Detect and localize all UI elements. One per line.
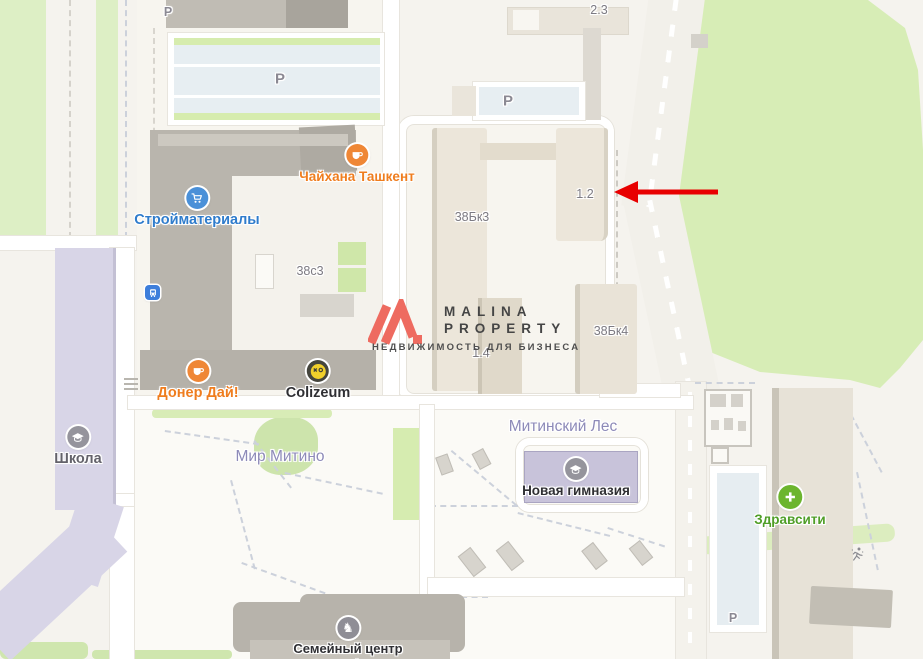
poi-label: Школа: [54, 451, 101, 467]
building: [731, 394, 743, 407]
area-label-mitinsky-les[interactable]: Митинский Лес: [509, 418, 618, 436]
green-strip: [174, 38, 380, 45]
building-38bk3: [480, 143, 558, 160]
building-38bk4: [575, 284, 637, 394]
logo-brand-line2: PROPERTY: [444, 321, 566, 336]
rocking-horse-glyph: ♞: [342, 622, 354, 635]
green-area: [338, 268, 366, 292]
logo-brand-line1: MALINA: [444, 304, 533, 319]
building: [452, 86, 476, 116]
building-label-38bk3: 38Бк3: [455, 210, 490, 224]
parking-label: P: [275, 71, 285, 88]
building-label-1-2: 1.2: [576, 187, 593, 201]
logo-tagline: НЕДВИЖИМОСТЬ ДЛЯ БИЗНЕСА: [372, 342, 580, 353]
building: [513, 10, 539, 30]
green-strip: [174, 113, 380, 120]
rocking-horse-icon: ♞: [337, 617, 359, 639]
poi-label: Семейный центр: [293, 642, 402, 657]
graduation-cap-icon: [67, 426, 89, 448]
city-block: [434, 596, 680, 659]
graduation-cap-icon: [565, 458, 587, 480]
poi-stroymaterialy[interactable]: Стройматериалы: [134, 187, 259, 228]
green-area: [152, 409, 332, 418]
poi-label: Colizeum: [286, 385, 350, 401]
road-centerline: [688, 392, 692, 652]
poi-semeyny-centr[interactable]: ♞ Семейный центр Атмосфера: [293, 617, 402, 659]
park-path: [695, 382, 755, 384]
building-label-38bk4: 38Бк4: [594, 324, 629, 338]
building: [724, 418, 733, 430]
teacup-icon: [346, 144, 368, 166]
green-area: [338, 242, 366, 265]
building-38bk3: [556, 128, 608, 241]
building: [583, 28, 601, 120]
building: [255, 254, 274, 289]
building: [711, 420, 719, 430]
road: [428, 578, 684, 596]
parking-label: P: [164, 5, 172, 19]
building: [691, 34, 708, 48]
poi-label: Стройматериалы: [134, 212, 259, 228]
poi-label: Здравсити: [754, 512, 825, 527]
dashed-path: [125, 0, 127, 238]
malina-property-logo-mark: [368, 299, 434, 345]
shopping-cart-icon: [186, 187, 208, 209]
green-area: [254, 417, 318, 475]
poi-label: Новая гимназия: [522, 483, 630, 498]
runner-icon: [849, 546, 865, 562]
medical-plus-icon: [778, 485, 802, 509]
poi-label: Чайхана Ташкент: [299, 169, 414, 184]
gaming-smiley-icon: [307, 360, 329, 382]
school-building: [55, 248, 116, 510]
building: [809, 586, 893, 628]
teacup-icon: [187, 360, 209, 382]
poi-colizeum[interactable]: Colizeum: [286, 360, 350, 401]
building: [300, 294, 354, 317]
area-label-mir-mitino[interactable]: Мир Митино: [235, 448, 324, 466]
parking-label: P: [503, 93, 513, 110]
poi-label: Донер Дай!: [157, 385, 238, 401]
building: [711, 447, 729, 464]
poi-shkola[interactable]: Школа: [54, 426, 101, 467]
building: [286, 0, 348, 28]
parking-area: [717, 473, 759, 625]
building: [166, 0, 286, 28]
building-label-38s3: 38с3: [296, 264, 323, 278]
poi-doner-day[interactable]: Донер Дай!: [157, 360, 238, 401]
building-label-2-3: 2.3: [590, 3, 607, 17]
green-area: [0, 0, 46, 242]
bus-stop-icon[interactable]: [145, 285, 160, 300]
building: [710, 394, 726, 407]
green-area: [96, 0, 118, 242]
road-marks: [124, 378, 138, 391]
map-canvas[interactable]: P 2.3 P P 38с3 38Бк3 1.2 1.4 38Бк4 P Мир…: [0, 0, 923, 659]
poi-chaihana-tashkent[interactable]: Чайхана Ташкент: [299, 144, 414, 184]
annotation-arrow: [606, 178, 724, 206]
poi-novaya-gimnaziya[interactable]: Новая гимназия: [522, 458, 630, 498]
building: [738, 421, 746, 431]
poi-zdravsiti[interactable]: Здравсити: [754, 485, 825, 527]
dashed-path: [69, 0, 71, 238]
park-path: [430, 505, 518, 507]
parking-area: [479, 87, 579, 115]
parking-label: P: [729, 611, 737, 625]
